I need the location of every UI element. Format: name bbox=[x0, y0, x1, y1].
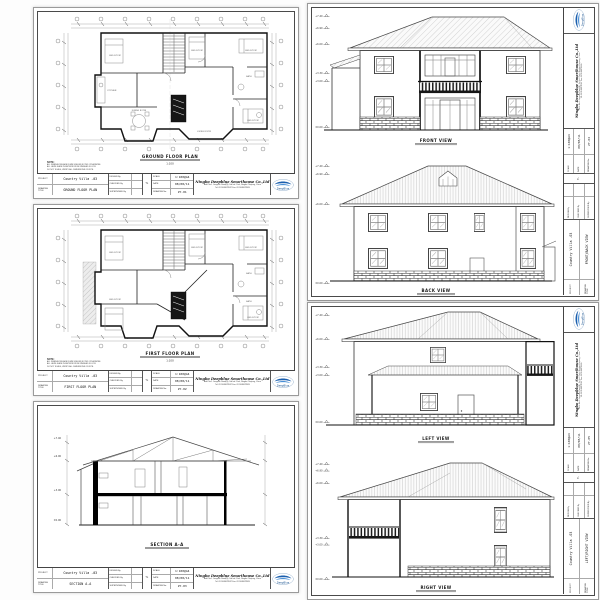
company-logo: DeepBlue bbox=[271, 568, 295, 589]
left-elevation: +7.40 +6.00 +3.30 +3.00 ±0.00 bbox=[315, 312, 554, 443]
note-block: NOTE: ALL DIMENSIONS ARE IN MM UNLESS NO… bbox=[47, 161, 109, 171]
window bbox=[494, 508, 506, 533]
date-label: DATE bbox=[152, 181, 171, 187]
back-caption: BACK VIEW bbox=[417, 288, 455, 295]
company-block: Ningbo Deepblue Smarthouse Co.,Ltd Add: … bbox=[564, 332, 594, 427]
brick-base bbox=[408, 566, 550, 577]
svg-text:±0.00: ±0.00 bbox=[315, 126, 323, 129]
caption-section: SECTION A-A bbox=[150, 542, 184, 547]
grid-bubbles bbox=[56, 17, 283, 151]
caption-ground-floor-plan: GROUND FLOOR PLAN bbox=[142, 154, 198, 159]
svg-text:+6.00: +6.00 bbox=[54, 455, 62, 458]
front-upper-bay-window bbox=[425, 55, 475, 76]
company-block: Ningbo Deepblue Smarthouse Co.,Ltd Add: … bbox=[564, 33, 594, 128]
front-back-elevations-svg: +7.40 +6.90 +6.00 +3.30 +3.00 ±0.00 bbox=[312, 8, 556, 296]
front-porch bbox=[330, 55, 360, 130]
svg-text:+6.00: +6.00 bbox=[315, 203, 323, 206]
svg-text:DeepBlue: DeepBlue bbox=[277, 383, 290, 387]
title-block: PROJECTCountry Villa -03 DRAWING TITLEFI… bbox=[37, 370, 295, 392]
caption-right-view: RIGHT VIEW bbox=[420, 585, 451, 590]
sheet-caption: SECTION A-A bbox=[145, 542, 189, 549]
company-block: Ningbo Deepblue Smarthouse Co.,Ltd Add: … bbox=[194, 568, 271, 589]
caption-scale: 1:100 bbox=[166, 359, 174, 363]
section-svg: +7.40 +6.00 +3.00 ±0.00 SECTION A-A bbox=[37, 405, 295, 567]
company-logo: DeepBlue bbox=[564, 8, 594, 33]
svg-text:BED ROOM: BED ROOM bbox=[109, 252, 121, 254]
title-block: PROJECTCountry Villa -03 DRAWING TITLEFR… bbox=[563, 8, 594, 295]
svg-text:BED ROOM: BED ROOM bbox=[247, 317, 259, 319]
drawing-board: BED ROOM BED ROOM BED ROOM BED ROOM KITC… bbox=[0, 0, 600, 600]
svg-text:BATH: BATH bbox=[246, 272, 252, 275]
svg-text:DeepBlue: DeepBlue bbox=[580, 313, 584, 326]
svg-text:BED ROOM: BED ROOM bbox=[191, 50, 203, 52]
stair bbox=[163, 34, 185, 72]
caption-back-view: BACK VIEW bbox=[422, 288, 451, 293]
company-logo: DeepBlue bbox=[271, 371, 295, 392]
front-roof bbox=[350, 17, 550, 48]
brick-base bbox=[354, 271, 544, 281]
drawing-title: FRONT/BACK VIEW bbox=[580, 220, 595, 279]
front-elevation: +7.40 +6.90 +6.00 +3.30 +3.00 ±0.00 bbox=[315, 14, 552, 145]
svg-text:+6.90: +6.90 bbox=[315, 470, 323, 473]
caption-scale: 1:100 bbox=[166, 162, 174, 166]
drawing-title: SECTION A-A bbox=[53, 579, 108, 589]
drawing-title: FIRST FLOOR PLAN bbox=[53, 382, 108, 392]
svg-text:+3.00: +3.00 bbox=[315, 80, 323, 83]
svg-text:+7.40: +7.40 bbox=[315, 165, 323, 168]
company-block: Ningbo Deepblue Smarthouse Co.,Ltd Add: … bbox=[194, 371, 271, 392]
back-levels: +7.40 +6.90 +6.00 ±0.00 bbox=[315, 164, 329, 285]
window bbox=[507, 56, 526, 73]
svg-text:BED ROOM: BED ROOM bbox=[245, 247, 257, 249]
window bbox=[375, 97, 394, 118]
deepblue-logo-icon: DeepBlue bbox=[573, 10, 585, 32]
svg-text:DeepBlue: DeepBlue bbox=[580, 14, 584, 27]
sheet-front-back-view: +7.40 +6.90 +6.00 +3.30 +3.00 ±0.00 bbox=[307, 3, 599, 301]
window bbox=[474, 213, 484, 231]
svg-text:BED ROOM: BED ROOM bbox=[109, 55, 121, 57]
left-right-elevations-svg: +7.40 +6.00 +3.30 +3.00 ±0.00 bbox=[312, 307, 556, 595]
caption-first-floor-plan: FIRST FLOOR PLAN bbox=[145, 351, 194, 356]
window bbox=[520, 249, 535, 269]
svg-text:DINING ROOM: DINING ROOM bbox=[132, 110, 147, 112]
svg-text:+3.30: +3.30 bbox=[315, 72, 323, 75]
section-levels: +7.40 +6.00 +3.00 ±0.00 bbox=[54, 437, 62, 522]
dimension-ticks bbox=[62, 22, 274, 142]
svg-text:LIVING ROOM: LIVING ROOM bbox=[197, 131, 211, 133]
left-caption: LEFT VIEW bbox=[418, 436, 454, 443]
checked-by-label: CHECKED By bbox=[109, 181, 132, 187]
sheet-left-right-view: +7.40 +6.00 +3.30 +3.00 ±0.00 bbox=[307, 302, 599, 600]
project-name: Country Villa -03 bbox=[564, 519, 579, 578]
company-block: Ningbo Deepblue Smarthouse Co.,Ltd Add: … bbox=[194, 174, 271, 195]
window bbox=[369, 249, 388, 269]
svg-text:DeepBlue: DeepBlue bbox=[277, 186, 290, 190]
left-balcony-tower bbox=[526, 342, 554, 425]
svg-text:+3.00: +3.00 bbox=[315, 544, 323, 547]
svg-text:+7.40: +7.40 bbox=[315, 463, 323, 466]
window bbox=[430, 347, 445, 362]
sheet-caption: GROUND FLOOR PLAN 1:100 bbox=[140, 154, 200, 166]
svg-text:KITCHEN: KITCHEN bbox=[108, 90, 117, 92]
svg-text:+6.90: +6.90 bbox=[315, 27, 323, 30]
project-name: Country Villa -03 bbox=[564, 220, 579, 279]
project-name: Country Villa -03 bbox=[53, 371, 108, 381]
svg-text:+6.00: +6.00 bbox=[315, 43, 323, 46]
svg-text:BATH: BATH bbox=[246, 75, 252, 78]
svg-text:DeepBlue: DeepBlue bbox=[277, 580, 290, 584]
window bbox=[420, 393, 437, 410]
svg-text:BATH: BATH bbox=[246, 300, 252, 303]
scale-value: 1:100@A4 bbox=[171, 174, 193, 180]
svg-text:+3.30: +3.30 bbox=[315, 537, 323, 540]
project-label: PROJECT bbox=[37, 174, 53, 184]
project-name: Country Villa -03 bbox=[53, 568, 108, 578]
front-balcony bbox=[418, 82, 482, 94]
sheet-caption: FIRST FLOOR PLAN 1:100 bbox=[140, 351, 200, 363]
front-levels: +7.40 +6.90 +6.00 +3.30 +3.00 ±0.00 bbox=[315, 14, 329, 129]
title-block: PROJECTCountry Villa -03 DRAWING TITLELE… bbox=[563, 307, 594, 594]
svg-text:+6.90: +6.90 bbox=[315, 173, 323, 176]
svg-text:BED ROOM: BED ROOM bbox=[245, 50, 257, 52]
right-levels: +7.40 +6.90 +6.00 +3.30 +3.00 ±0.00 bbox=[315, 462, 329, 581]
svg-text:+3.00: +3.00 bbox=[315, 374, 323, 377]
right-roof bbox=[340, 463, 552, 497]
svg-text:+3.30: +3.30 bbox=[315, 366, 323, 369]
svg-text:±0.00: ±0.00 bbox=[54, 519, 62, 522]
brick-base bbox=[480, 117, 540, 130]
front-caption: FRONT VIEW bbox=[415, 138, 457, 145]
drawing-title-label: DRAWING TITLE bbox=[37, 185, 53, 195]
company-logo: DeepBlue bbox=[271, 174, 295, 195]
right-elevation: +7.40 +6.90 +6.00 +3.30 +3.00 ±0.00 bbox=[315, 462, 554, 592]
project-name: Country Villa -03 bbox=[53, 174, 108, 184]
drawing-title: LEFT/RIGHT VIEW bbox=[580, 519, 595, 578]
window bbox=[429, 213, 448, 231]
sheet-section: +7.40 +6.00 +3.00 ±0.00 SECTION A-A bbox=[33, 401, 299, 593]
right-wall bbox=[400, 500, 550, 577]
deepblue-logo-icon: DeepBlue bbox=[573, 309, 585, 331]
section-structure bbox=[77, 461, 227, 525]
svg-text:+7.40: +7.40 bbox=[315, 15, 323, 18]
window bbox=[494, 546, 506, 569]
svg-text:BED ROOM: BED ROOM bbox=[109, 299, 121, 301]
svg-text:+6.00: +6.00 bbox=[315, 338, 323, 341]
brick-base bbox=[360, 117, 420, 130]
drawing-no-value: ZY-01 bbox=[171, 189, 193, 195]
deepblue-logo-icon: DeepBlue bbox=[272, 376, 294, 388]
supervised-by-label: SUPERVISED By bbox=[109, 189, 132, 195]
svg-text:±0.00: ±0.00 bbox=[315, 578, 323, 581]
svg-text:±0.00: ±0.00 bbox=[315, 282, 323, 285]
date-value: 08/08/11 bbox=[171, 181, 193, 187]
design-by-label: DESIGN By bbox=[109, 174, 132, 180]
scale-label: SCALE bbox=[152, 174, 171, 180]
back-elevation: +7.40 +6.90 +6.00 ±0.00 bbox=[315, 164, 556, 295]
left-roof bbox=[344, 312, 538, 339]
note-block: NOTE: ALL DIMENSIONS ARE IN MM UNLESS NO… bbox=[47, 358, 109, 368]
sheet-ground-floor-plan: BED ROOM BED ROOM BED ROOM BED ROOM KITC… bbox=[33, 7, 299, 199]
drawing-title: GROUND FLOOR PLAN bbox=[53, 185, 108, 195]
company-logo: DeepBlue bbox=[564, 307, 594, 332]
window bbox=[429, 249, 448, 269]
window bbox=[520, 213, 535, 231]
deepblue-logo-icon: DeepBlue bbox=[272, 179, 294, 191]
lower-roof-hatch bbox=[83, 262, 96, 324]
svg-text:BED ROOM: BED ROOM bbox=[247, 120, 259, 122]
window bbox=[375, 56, 394, 73]
dark-block bbox=[171, 292, 186, 319]
svg-text:±0.00: ±0.00 bbox=[315, 421, 323, 424]
ground-floor-plan-svg: BED ROOM BED ROOM BED ROOM BED ROOM KITC… bbox=[37, 11, 295, 173]
sheet-first-floor-plan: BED ROOM BED ROOM BED ROOM BED ROOM BED … bbox=[33, 204, 299, 396]
exterior-walls bbox=[95, 230, 267, 338]
left-levels: +7.40 +6.00 +3.30 +3.00 ±0.00 bbox=[315, 313, 329, 424]
tl-label: TL bbox=[144, 183, 149, 185]
caption-front-view: FRONT VIEW bbox=[420, 138, 453, 143]
drawing-no-label: DRAWING No. bbox=[152, 189, 171, 195]
svg-text:BED ROOM: BED ROOM bbox=[191, 247, 203, 249]
window bbox=[507, 97, 526, 118]
title-block: PROJECTCountry Villa -03 DRAWING TITLESE… bbox=[37, 567, 295, 589]
right-balcony-tower bbox=[348, 500, 400, 577]
deepblue-logo-icon: DeepBlue bbox=[272, 573, 294, 585]
living-room-dark-block bbox=[171, 95, 186, 122]
svg-text:+7.40: +7.40 bbox=[315, 314, 323, 317]
brick-base bbox=[356, 414, 524, 425]
roof-truss bbox=[83, 437, 259, 465]
window bbox=[369, 213, 388, 231]
exterior-walls bbox=[95, 33, 267, 141]
first-floor-plan-svg: BED ROOM BED ROOM BED ROOM BED ROOM BED … bbox=[37, 208, 295, 370]
caption-left-view: LEFT VIEW bbox=[422, 436, 450, 441]
svg-text:+6.00: +6.00 bbox=[315, 482, 323, 485]
right-caption: RIGHT VIEW bbox=[416, 585, 456, 592]
front-entry bbox=[425, 98, 475, 130]
title-block: PROJECTCountry Villa -03 DRAWING TITLEGR… bbox=[37, 173, 295, 195]
svg-text:+3.00: +3.00 bbox=[54, 489, 62, 492]
svg-text:+7.40: +7.40 bbox=[54, 437, 62, 440]
